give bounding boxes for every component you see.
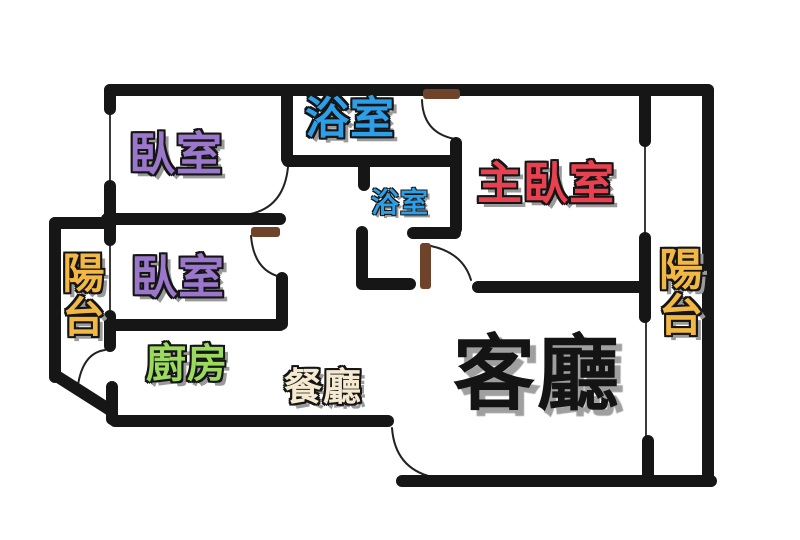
room-label-dining: 餐廳 (284, 369, 362, 407)
door-leaf (420, 243, 431, 289)
door-swing-arc (422, 100, 455, 139)
wall-balcony-diagonal (55, 375, 110, 410)
floor-plan: 臥室 浴室 主臥室 浴室 臥室 陽台 陽台 廚房 餐廳 客廳 (0, 0, 800, 540)
room-label-bedroom-top: 臥室 (129, 131, 223, 177)
door-leaf (423, 89, 460, 99)
room-label-bathroom-small: 浴室 (371, 189, 429, 217)
room-label-master-bedroom: 主臥室 (477, 161, 615, 206)
door-swing-arc (250, 167, 288, 214)
room-label-bedroom-mid: 臥室 (131, 254, 225, 300)
door-leaf (251, 227, 280, 237)
room-label-bathroom-main: 浴室 (305, 97, 395, 141)
door-swing-arc (251, 236, 281, 277)
room-label-balcony-left: 陽台 (59, 251, 101, 339)
door-swing-arc (431, 246, 471, 280)
room-label-kitchen: 廚房 (146, 344, 228, 384)
door-swing-arc (392, 428, 432, 477)
door-swing-arc (78, 350, 105, 385)
room-label-living: 客廳 (453, 334, 621, 416)
room-label-balcony-right: 陽台 (654, 246, 698, 338)
